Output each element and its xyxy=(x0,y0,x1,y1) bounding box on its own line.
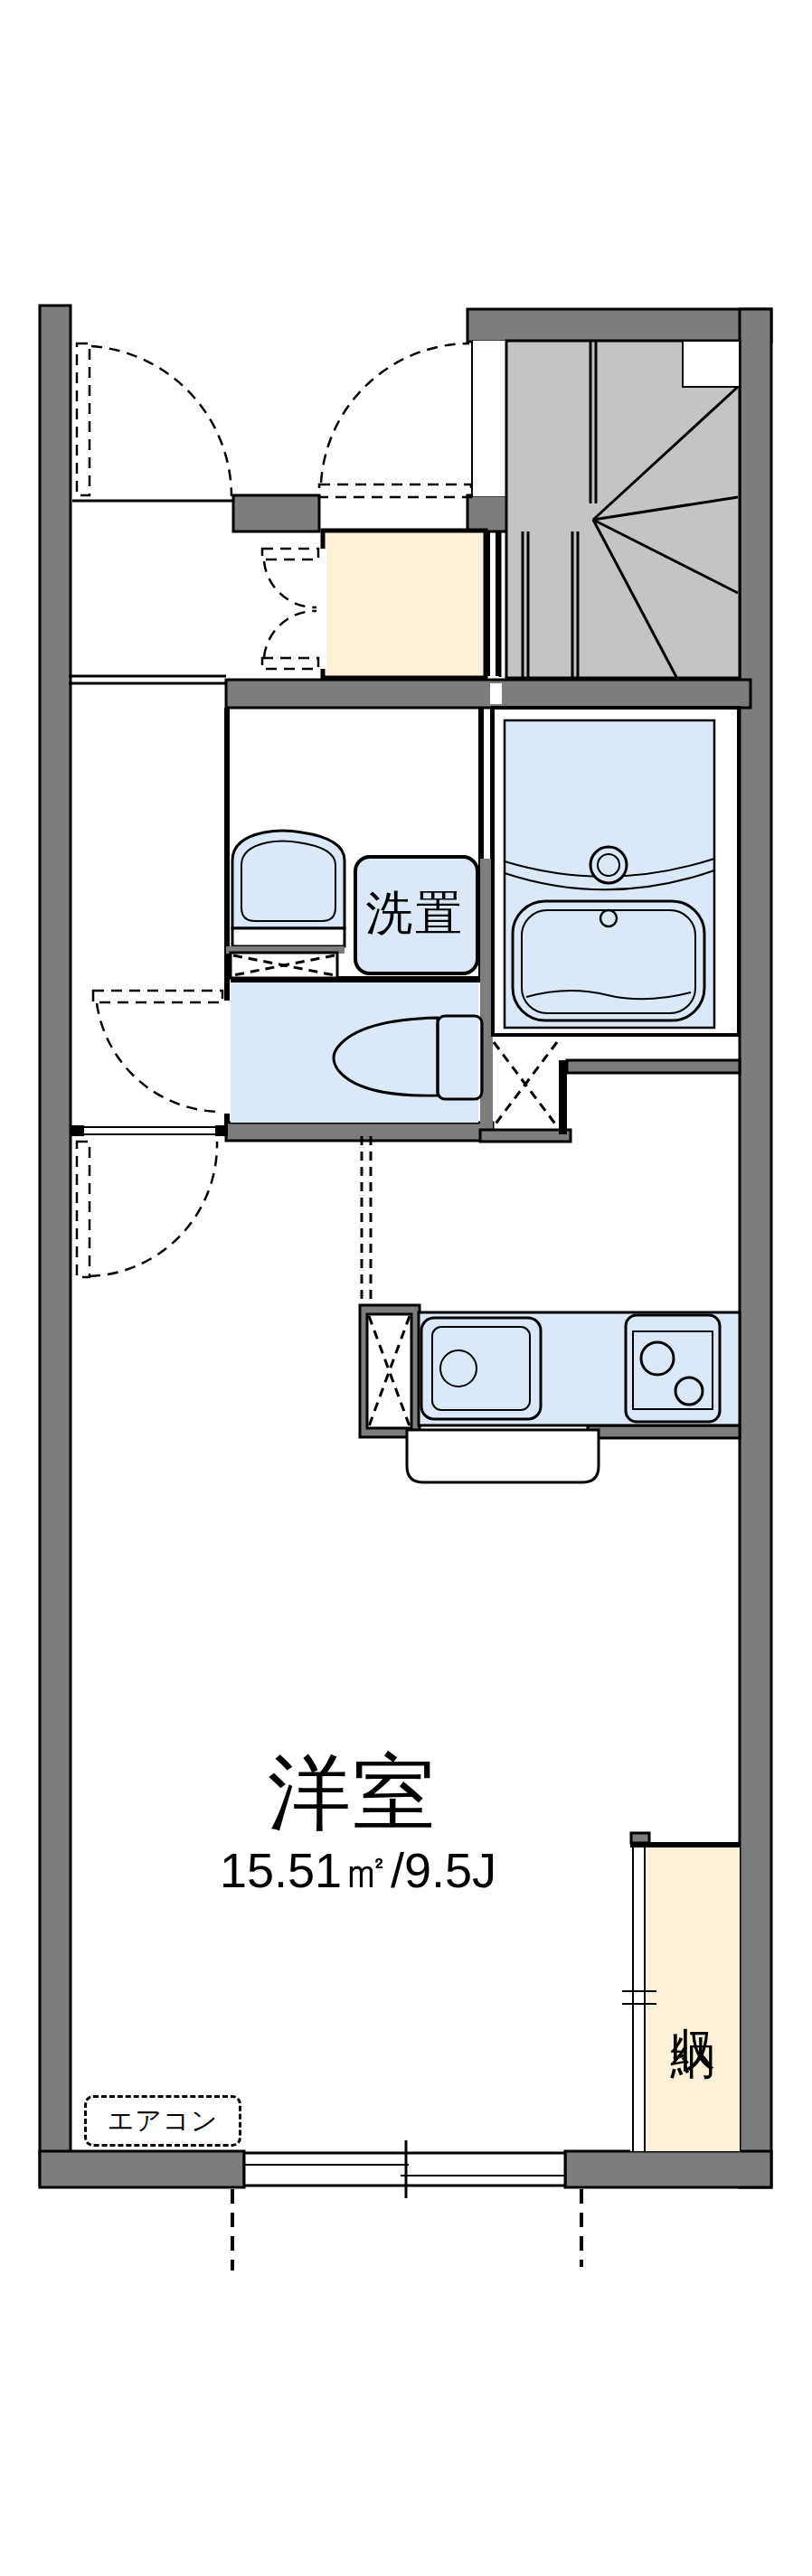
toilet-floor xyxy=(231,982,478,1123)
washroom-top-wall xyxy=(226,680,751,708)
double-door-leaf-top xyxy=(262,549,318,559)
vanity-front xyxy=(232,928,345,946)
kitchen-stub-wall xyxy=(588,1425,740,1438)
stair-area xyxy=(506,341,740,678)
outer-wall-left xyxy=(40,306,71,2186)
outer-wall-bottom-right xyxy=(565,2151,771,2187)
closet-top-cap xyxy=(631,1833,649,1843)
doorway-jamb-left xyxy=(70,1125,84,1136)
corridor-wall-upper xyxy=(224,708,230,1001)
bathroom xyxy=(493,708,739,1035)
washer-space-label: 洗置 xyxy=(365,882,465,945)
toilet-door-leaf xyxy=(93,991,222,1002)
genkan-floor xyxy=(323,531,486,678)
main-room-door-leaf xyxy=(77,1142,90,1277)
pipe-space xyxy=(494,1042,557,1126)
outer-wall-top xyxy=(467,309,771,342)
toilet-bottom-wall xyxy=(226,1123,493,1141)
porch-wall-left-segment xyxy=(233,495,319,531)
aircon-label: エアコン xyxy=(108,2103,219,2139)
main-room-top-wall xyxy=(567,1060,740,1073)
double-door-swing-arc xyxy=(264,561,316,607)
stair-top-landing-notch xyxy=(683,341,740,387)
genkan-door-opening xyxy=(316,549,326,669)
main-room-area-label: 15.51㎡/9.5J xyxy=(220,1838,496,1904)
double-door-swing-arc xyxy=(264,611,316,657)
staircase xyxy=(472,341,740,678)
porch-door-swing-arc xyxy=(91,346,231,496)
aircon-box: エアコン xyxy=(84,2095,241,2147)
front-door-swing-arc xyxy=(321,343,469,483)
doorway-jamb-right xyxy=(215,1125,228,1136)
front-door-leaf xyxy=(319,484,471,497)
window-south xyxy=(232,2140,581,2270)
floor-plan-drawing xyxy=(0,0,812,2576)
floor-plan: 洗置 洋室 15.51㎡/9.5J 収納 エアコン xyxy=(0,0,812,2576)
bathtub-drain xyxy=(600,910,617,926)
main-room-label: 洋室 xyxy=(268,1737,438,1849)
toilet-room xyxy=(231,982,482,1123)
main-room-door-swing-arc xyxy=(90,1142,217,1276)
bath-left-wall xyxy=(480,859,493,1141)
porch-door-leaf xyxy=(77,343,90,495)
kitchen-step xyxy=(407,1430,599,1482)
entrance xyxy=(316,531,486,678)
toilet-door-swing-arc xyxy=(97,1003,221,1112)
outer-wall-bottom-left xyxy=(40,2151,244,2187)
wall-notch xyxy=(490,683,502,704)
double-door-leaf-bottom xyxy=(262,658,318,669)
outer-wall-right xyxy=(740,309,771,2187)
closet-label: 収納 xyxy=(664,1991,724,2009)
pipe-space-bottom-wall xyxy=(480,1130,571,1142)
front-door-recess xyxy=(473,341,505,496)
bath-faucet-outer xyxy=(590,847,627,883)
vanity-basin-outer xyxy=(232,831,345,928)
